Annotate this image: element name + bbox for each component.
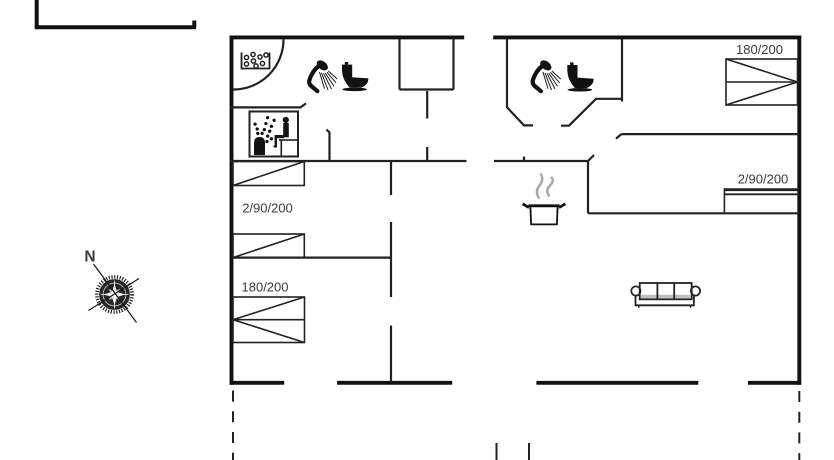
svg-text:N: N <box>84 249 95 266</box>
svg-text:2/90/200: 2/90/200 <box>242 201 293 216</box>
svg-text:2/90/200: 2/90/200 <box>738 172 789 187</box>
svg-text:180/200: 180/200 <box>242 280 289 295</box>
svg-text:180/200: 180/200 <box>736 42 783 57</box>
